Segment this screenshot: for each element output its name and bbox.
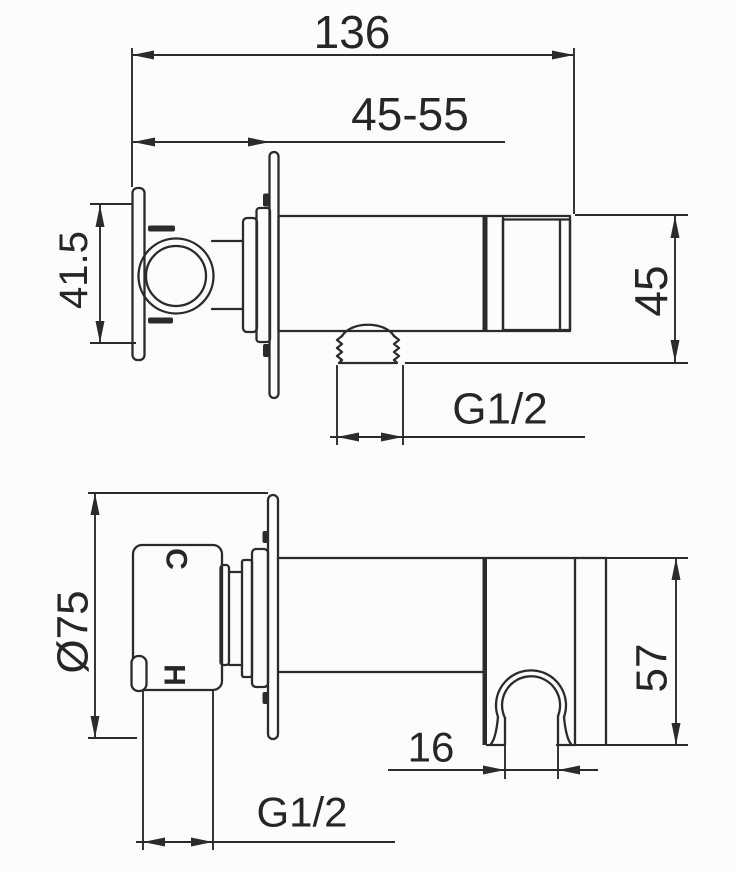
dim-body-height: 41.5 [52,204,136,343]
flange-clip-top [263,194,270,207]
hook-inner-arc [502,676,560,718]
dim-inlet-thread: G1/2 [136,690,395,850]
arrowhead [191,838,213,847]
arrowhead [248,138,270,147]
arrowhead [143,838,165,847]
hook-foot-right [564,717,571,744]
arrowhead [671,216,680,238]
arrowhead [91,493,100,515]
arrowhead [337,433,359,442]
dim-label-arm-end-height: 45 [625,265,677,316]
dim-plate-diameter: Ø75 [49,493,269,738]
flange-clip-bottom [263,344,270,357]
escutcheon-inner [243,218,257,332]
arrowhead [672,723,681,745]
label-cold: C [160,548,193,570]
bottom-view: C H [132,495,607,745]
dim-label-plate-diameter: Ø75 [49,590,98,673]
flange-clip-bottom [263,692,269,704]
arrowhead [483,766,505,775]
hook-foot-left [491,717,498,744]
dim-label-holder-depth: 57 [628,644,677,693]
arrowhead [133,138,155,147]
arrowhead [91,716,100,738]
arrowhead [552,51,574,60]
dim-label-inlet-thread: G1/2 [256,789,347,836]
dim-label-outlet-thread: G1/2 [452,385,547,434]
body-step-bottom [148,318,173,324]
valve-port-outer [139,239,214,314]
arm-ring [483,558,488,745]
dim-holder-depth: 57 [575,558,688,745]
arrowhead [96,321,105,343]
dim-label-overall-width: 136 [314,6,391,58]
technical-drawing: 136 45-55 41.5 45 G1/2 [0,0,736,872]
hook [491,670,571,745]
body-step-top [148,226,175,232]
dim-arm-end-height: 45 [405,215,688,363]
label-hot: H [158,664,191,686]
drawing-canvas: 136 45-55 41.5 45 G1/2 [0,0,736,872]
dim-label-hook-opening: 16 [408,724,455,771]
escutcheon-outer [257,208,271,342]
outlet-thread [337,336,399,363]
body-lug [132,656,147,691]
shower-arm [279,216,571,331]
side-view [133,152,571,398]
flange-clip-top [263,531,269,543]
arrowhead [132,51,154,60]
valve-port-inner [146,246,206,306]
arrowhead [96,205,105,227]
dim-outlet-thread: G1/2 [330,365,585,445]
dim-mounting-depth: 45-55 [133,88,505,147]
escutcheon-outer [252,549,268,687]
wall-flange-bottom [268,495,278,739]
arm-ring [483,216,488,331]
arrowhead [672,558,681,580]
arrowhead [558,766,580,775]
escutcheon-inner [242,560,252,677]
dim-label-mounting-depth: 45-55 [351,88,469,140]
arrowhead [671,340,680,362]
dim-label-body-height: 41.5 [52,231,96,309]
arrowhead [381,433,403,442]
